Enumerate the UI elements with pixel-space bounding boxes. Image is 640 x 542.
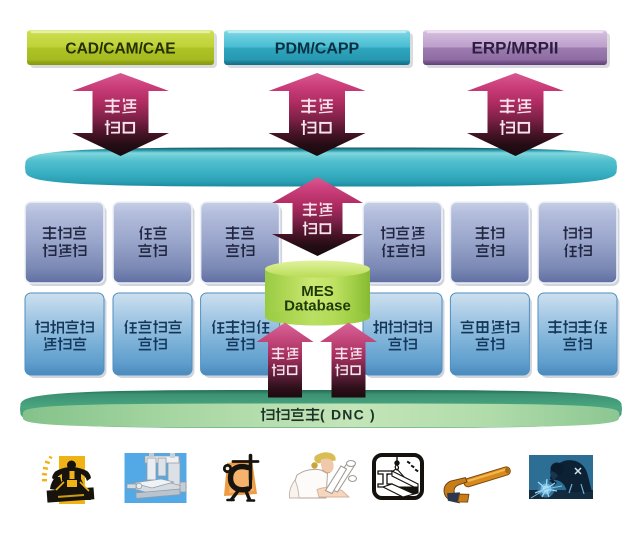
svg-text:Database: Database	[284, 298, 351, 315]
svg-text:CAD/CAM/CAE: CAD/CAM/CAE	[65, 41, 175, 58]
svg-text:ERP/MRPII: ERP/MRPII	[472, 39, 559, 58]
svg-text:( DNC ): ( DNC )	[320, 407, 376, 423]
svg-text:PDM/CAPP: PDM/CAPP	[275, 41, 360, 58]
